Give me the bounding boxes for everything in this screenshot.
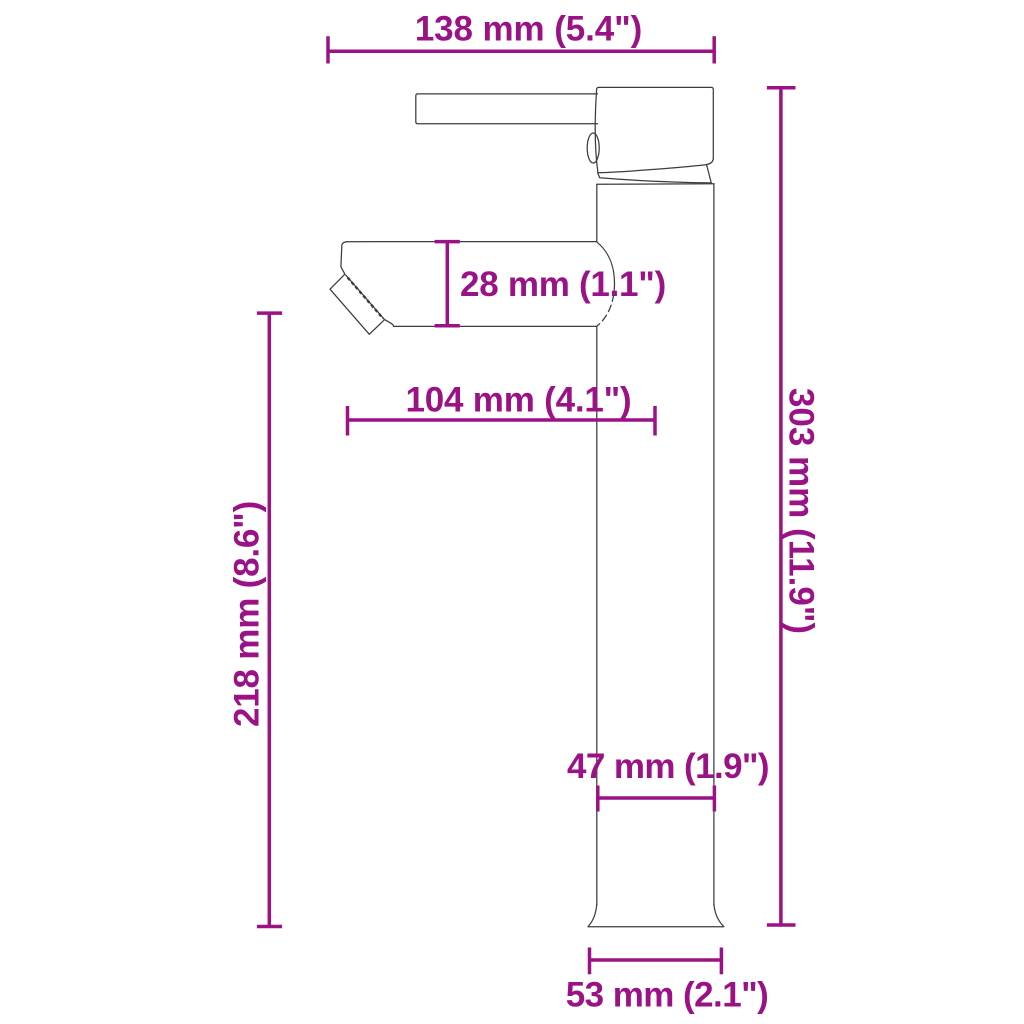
svg-text:47 mm (1.9"): 47 mm (1.9") <box>567 747 769 786</box>
svg-text:53 mm (2.1"): 53 mm (2.1") <box>566 976 769 1015</box>
svg-text:218 mm (8.6"): 218 mm (8.6") <box>228 501 267 727</box>
svg-text:138 mm (5.4"): 138 mm (5.4") <box>415 10 642 49</box>
svg-text:104 mm (4.1"): 104 mm (4.1") <box>405 381 631 420</box>
svg-text:303 mm (11.9"): 303 mm (11.9") <box>782 388 821 634</box>
svg-text:28 mm (1.1"): 28 mm (1.1") <box>460 265 666 304</box>
